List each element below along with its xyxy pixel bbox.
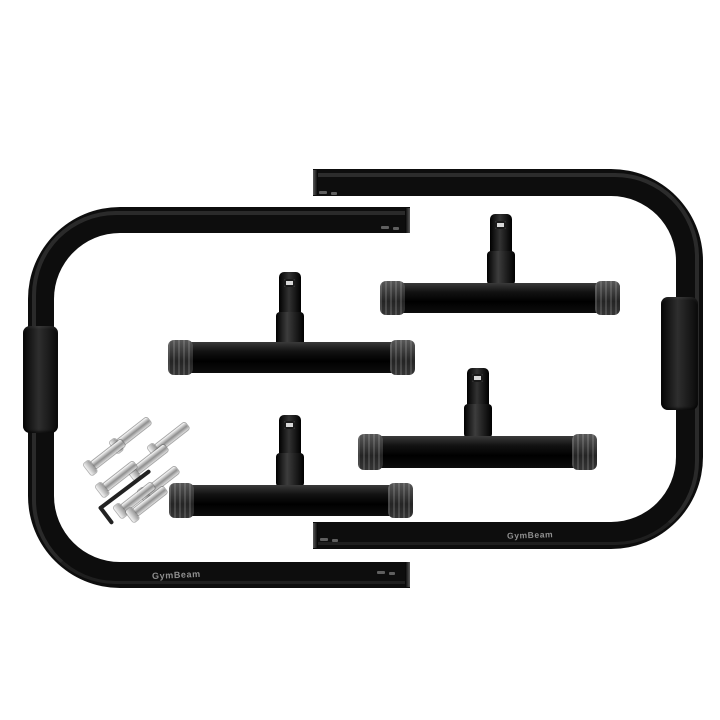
t-connector-sleeve xyxy=(276,453,304,487)
pin-hole-mark xyxy=(377,571,385,574)
right-frame-bottom-tube-open-end xyxy=(313,523,318,548)
pin-hole-mark xyxy=(389,572,395,575)
pin-hole-mark xyxy=(331,192,337,195)
t-connector-end-cap xyxy=(595,281,620,315)
t-connector-pin-hole xyxy=(495,221,506,229)
left-frame-foam-grip xyxy=(23,326,58,433)
t-connector-sleeve xyxy=(464,404,492,438)
product-photo: GymBeam GymBeam xyxy=(0,0,720,720)
right-frame-top-tube-open-end xyxy=(313,170,318,195)
brand-imprint-right: GymBeam xyxy=(507,529,554,541)
pin-hole-mark xyxy=(319,191,327,194)
t-connector-end-cap xyxy=(168,340,193,375)
t-connector-bar xyxy=(360,436,596,468)
left-frame-bottom-tube-open-end xyxy=(405,562,410,587)
t-connector-bar xyxy=(170,342,413,373)
brand-imprint-left: GymBeam xyxy=(152,569,201,581)
pin-hole-mark xyxy=(332,539,338,542)
t-connector-end-cap xyxy=(572,434,597,470)
t-connector-sleeve xyxy=(276,312,304,346)
t-connector-pin-hole xyxy=(472,374,483,382)
t-connector-end-cap xyxy=(169,483,194,518)
t-connector-bar xyxy=(382,283,620,313)
t-connector-bar xyxy=(171,485,412,516)
pin-hole-mark xyxy=(320,538,328,541)
t-connector-end-cap xyxy=(358,434,383,470)
t-connector-pin-hole xyxy=(284,421,295,429)
t-connector-end-cap xyxy=(390,340,415,375)
right-frame-foam-grip xyxy=(661,297,698,410)
t-connector-end-cap xyxy=(388,483,413,518)
t-connector-end-cap xyxy=(380,281,405,315)
t-connector-pin-hole xyxy=(284,279,295,287)
t-connector-sleeve xyxy=(487,251,515,285)
